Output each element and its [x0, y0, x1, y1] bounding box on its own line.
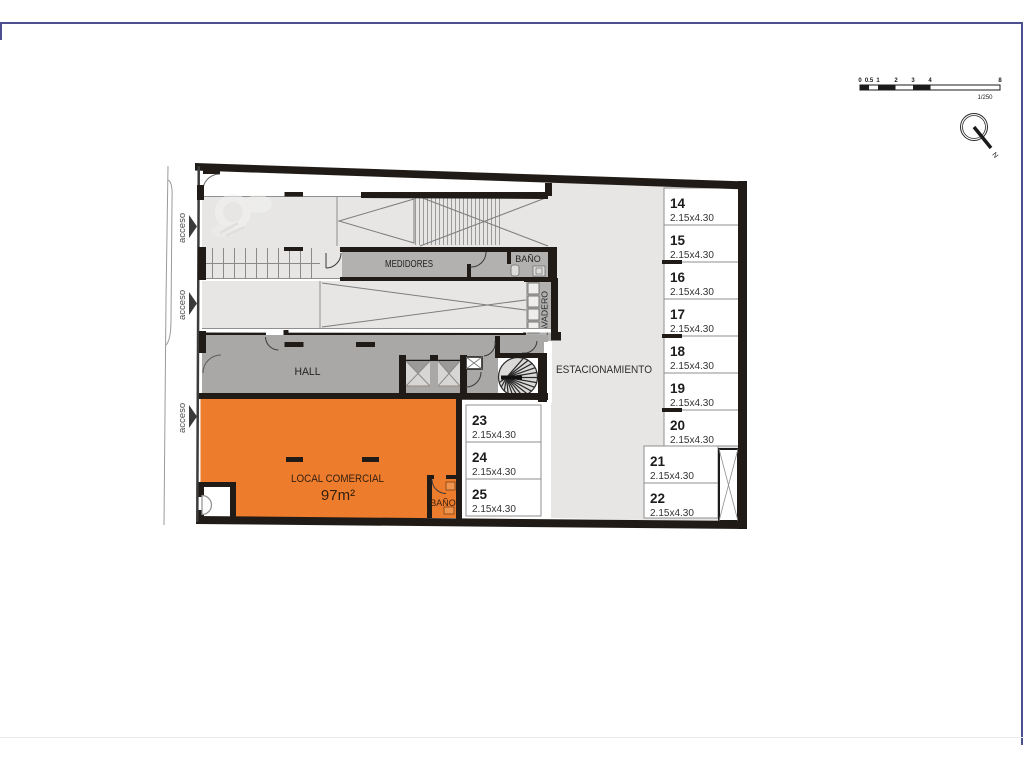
svg-text:97m²: 97m² — [321, 487, 355, 504]
svg-text:LOCAL COMERCIAL: LOCAL COMERCIAL — [291, 473, 384, 485]
svg-text:2.15x4.30: 2.15x4.30 — [472, 430, 516, 441]
svg-text:acceso: acceso — [177, 213, 188, 243]
svg-text:acceso: acceso — [177, 403, 188, 433]
svg-text:2.15x4.30: 2.15x4.30 — [670, 398, 714, 409]
svg-text:2.15x4.30: 2.15x4.30 — [670, 361, 714, 372]
svg-text:2.15x4.30: 2.15x4.30 — [650, 508, 694, 519]
svg-text:23: 23 — [472, 413, 488, 428]
svg-text:2.15x4.30: 2.15x4.30 — [670, 435, 714, 446]
svg-text:BAÑO: BAÑO — [430, 498, 456, 508]
svg-text:2.15x4.30: 2.15x4.30 — [472, 504, 516, 515]
svg-text:2.15x4.30: 2.15x4.30 — [472, 467, 516, 478]
svg-text:1/250: 1/250 — [977, 95, 993, 101]
svg-text:15: 15 — [670, 233, 686, 248]
svg-text:2.15x4.30: 2.15x4.30 — [670, 324, 714, 335]
svg-text:MEDIDORES: MEDIDORES — [385, 258, 433, 270]
svg-text:17: 17 — [670, 307, 685, 322]
svg-text:16: 16 — [670, 270, 686, 285]
svg-text:2.15x4.30: 2.15x4.30 — [670, 250, 714, 261]
svg-text:20: 20 — [670, 418, 685, 433]
svg-text:ESTACIONAMIENTO: ESTACIONAMIENTO — [556, 364, 652, 376]
svg-text:acceso: acceso — [177, 290, 188, 320]
svg-text:2.15x4.30: 2.15x4.30 — [670, 213, 714, 224]
svg-text:22: 22 — [650, 491, 665, 506]
svg-text:0.5: 0.5 — [865, 78, 874, 84]
svg-text:19: 19 — [670, 381, 685, 396]
svg-text:21: 21 — [650, 454, 666, 469]
svg-text:14: 14 — [670, 196, 686, 211]
svg-text:18: 18 — [670, 344, 686, 359]
svg-text:2.15x4.30: 2.15x4.30 — [650, 471, 694, 482]
svg-text:HALL: HALL — [295, 366, 321, 378]
svg-text:24: 24 — [472, 450, 488, 465]
svg-text:2.15x4.30: 2.15x4.30 — [670, 287, 714, 298]
svg-text:BAÑO: BAÑO — [515, 254, 541, 264]
svg-text:25: 25 — [472, 487, 488, 502]
